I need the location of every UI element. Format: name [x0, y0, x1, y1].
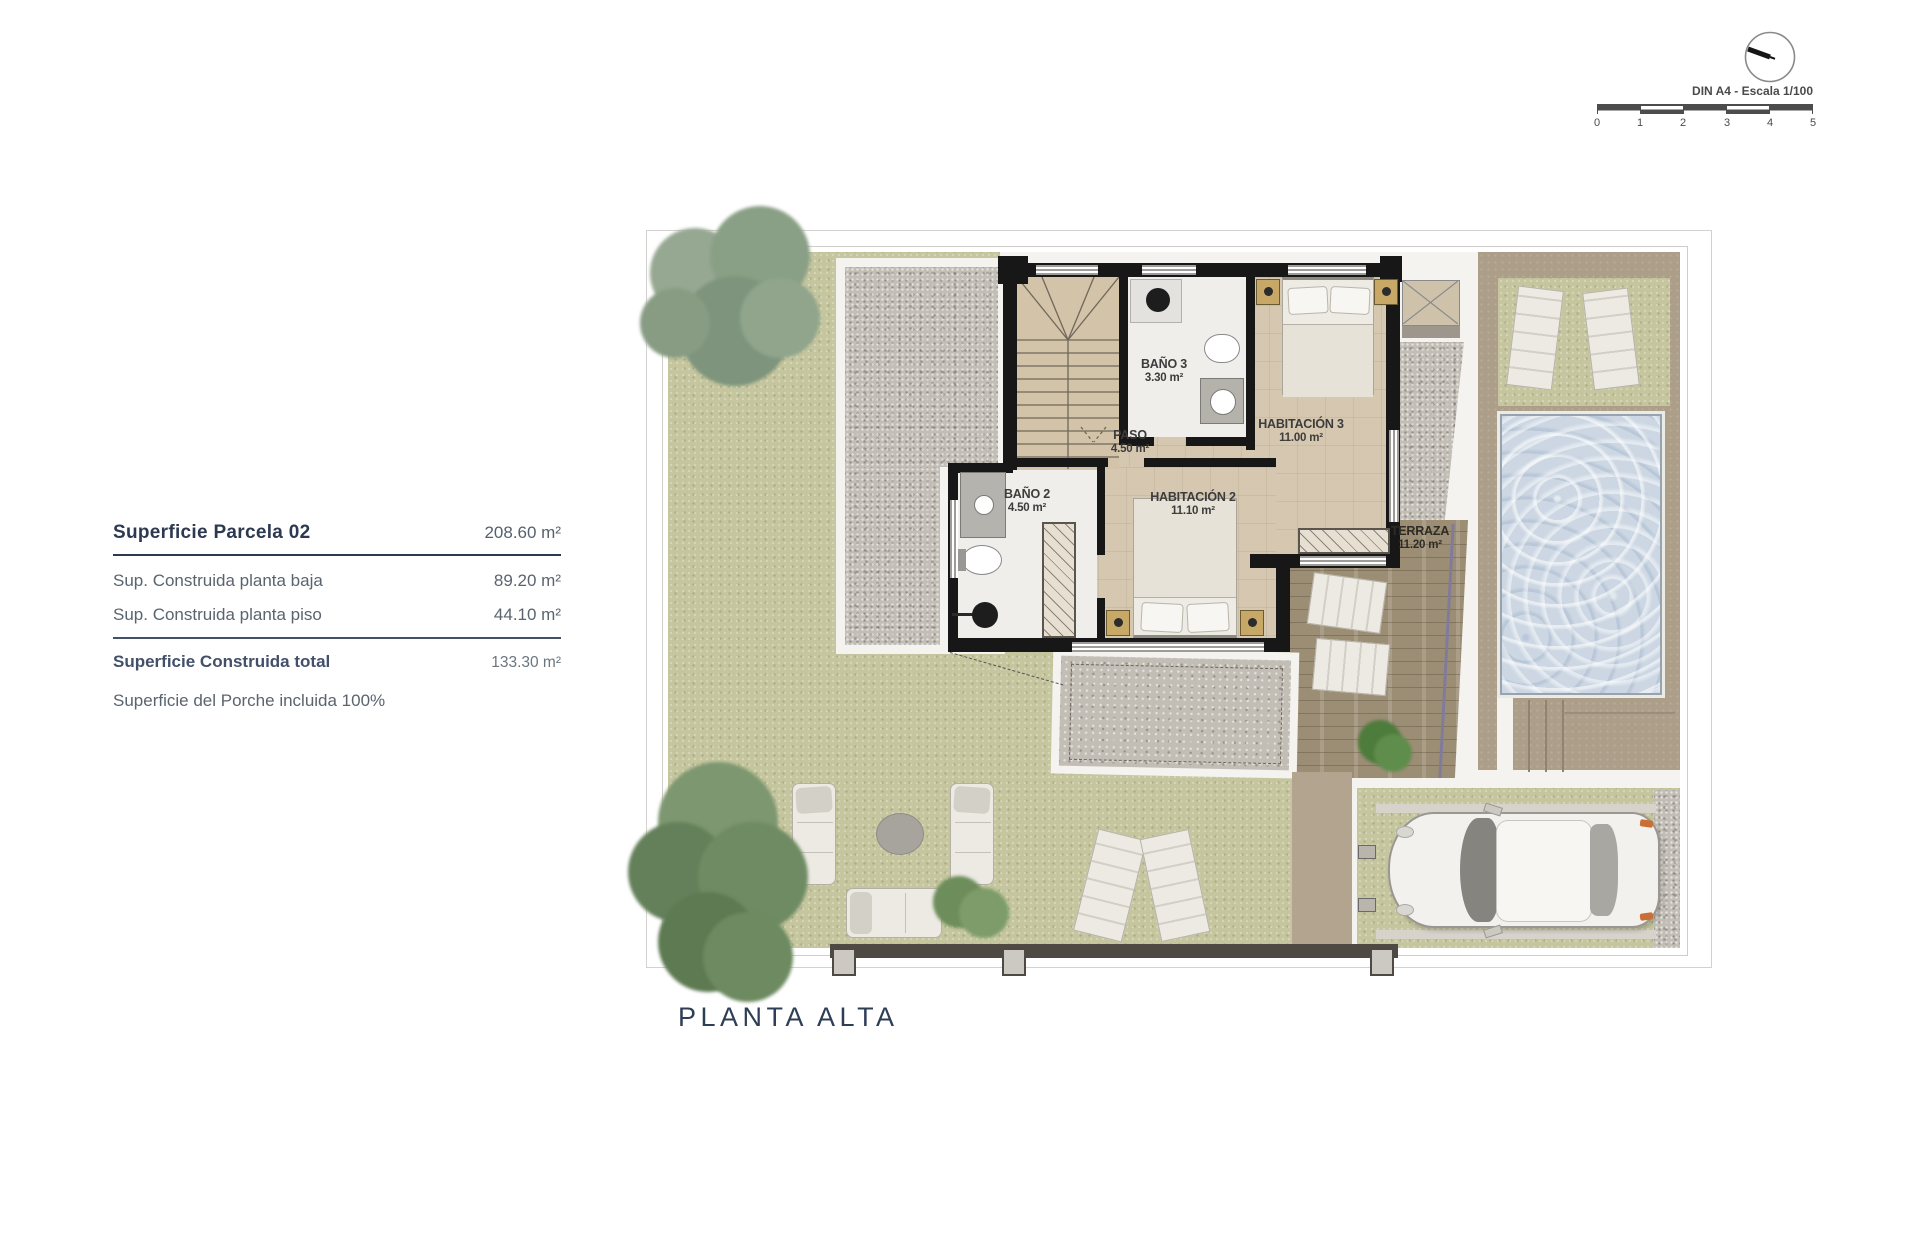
- toilet: [962, 545, 1002, 575]
- sofa-back: [953, 786, 991, 814]
- wall-corner-block: [998, 256, 1028, 284]
- gate-post: [1358, 898, 1376, 912]
- garden-table: [876, 813, 924, 855]
- room-label-paso: PASO 4.50 m²: [1088, 428, 1172, 456]
- table-divider: [113, 637, 561, 639]
- car-headlight: [1396, 904, 1414, 916]
- pillow: [1329, 286, 1370, 315]
- scale-ticks: 0 1 2 3 4 5: [1597, 116, 1813, 130]
- window: [1142, 265, 1196, 275]
- pillow: [1287, 286, 1328, 315]
- floor-plan-sheet: DIN A4 - Escala 1/100 0 1 2 3 4 5 Superf…: [0, 0, 1920, 1248]
- nightstand: [1240, 610, 1264, 636]
- terrace-sun-lounger: [1307, 572, 1388, 634]
- scale-bar-graphic: [1597, 104, 1813, 114]
- window: [1288, 265, 1366, 275]
- garden-loveseat: [846, 888, 942, 938]
- porch-post: [1002, 948, 1026, 976]
- plan-title: PLANTA ALTA: [678, 1002, 899, 1032]
- car-taillight: [1640, 912, 1654, 921]
- washbasin: [1146, 288, 1170, 312]
- terrace-door: [1300, 556, 1386, 566]
- bush: [933, 868, 1009, 946]
- table-divider: [113, 554, 561, 556]
- window: [1036, 265, 1098, 275]
- gravel-area-upper: [845, 267, 998, 467]
- bed: [1282, 277, 1374, 395]
- wall-mid: [1144, 458, 1276, 467]
- path-vertical: [1292, 772, 1352, 948]
- window: [950, 500, 958, 578]
- shower-drain: [1210, 389, 1236, 415]
- tree-top-left: [640, 198, 825, 403]
- lower-gravel-border: [1051, 647, 1300, 778]
- porch-post: [1370, 948, 1394, 976]
- porch-edge: [830, 944, 1398, 958]
- deck-seam: [1563, 712, 1675, 714]
- pillow: [1186, 602, 1229, 633]
- porch-post: [832, 948, 856, 976]
- toilet-tank: [958, 549, 966, 571]
- scale-label: DIN A4 - Escala 1/100: [1597, 84, 1813, 98]
- wall-bath2-hab2: [1097, 467, 1105, 555]
- car-windshield: [1460, 818, 1500, 922]
- window: [1389, 430, 1399, 522]
- sofa-back: [850, 892, 872, 934]
- row-value: 44.10 m²: [494, 604, 561, 626]
- car-headlight: [1396, 826, 1414, 838]
- area-table: Superficie Parcela 02 208.60 m² Sup. Con…: [113, 520, 561, 712]
- window: [1072, 642, 1264, 652]
- wall-mid: [1017, 458, 1108, 467]
- pillow: [1140, 602, 1183, 633]
- terrace-sun-lounger: [1312, 638, 1390, 696]
- parking-pad-line: [1376, 930, 1656, 939]
- parcel-label: Superficie Parcela 02: [113, 520, 310, 546]
- room-label-bano3: BAÑO 3 3.30 m²: [1118, 357, 1210, 385]
- car-roof: [1496, 820, 1592, 922]
- wall-bath3-bottom: [1186, 437, 1246, 446]
- nightstand: [1374, 279, 1398, 305]
- scale-bar: DIN A4 - Escala 1/100 0 1 2 3 4 5: [1597, 84, 1813, 130]
- wardrobe: [1042, 522, 1076, 638]
- ground-floor-dashed-outline: [1069, 664, 1283, 764]
- porch-footnote: Superficie del Porche incluida 100%: [113, 690, 561, 712]
- ac-unit-shadow: [1402, 326, 1460, 338]
- deck-steps: [1513, 700, 1565, 772]
- car: [1388, 812, 1660, 928]
- basin-arm: [952, 613, 974, 616]
- total-label: Superficie Construida total: [113, 651, 330, 673]
- room-label-bano2: BAÑO 2 4.50 m²: [982, 487, 1072, 515]
- row-value: 89.20 m²: [494, 570, 561, 592]
- room-label-habitacion3: HABITACIÓN 3 11.00 m²: [1238, 417, 1364, 445]
- north-compass-icon: [1744, 31, 1796, 83]
- gravel-area-lower: [845, 467, 940, 645]
- terrace-bush: [1358, 720, 1414, 776]
- washbasin: [972, 602, 998, 628]
- tree-bottom-left: [628, 762, 818, 1012]
- ac-unit: [1402, 280, 1460, 326]
- row-label: Sup. Construida planta piso: [113, 604, 322, 626]
- room-label-habitacion2: HABITACIÓN 2 11.10 m²: [1130, 490, 1256, 518]
- parcel-value: 208.60 m²: [484, 520, 561, 546]
- duvet: [1283, 324, 1373, 397]
- gate-post: [1358, 845, 1376, 859]
- wall-left: [1003, 277, 1017, 470]
- total-value: 133.30 m²: [491, 652, 561, 674]
- room-label-terraza: TERRAZA 11.20 m²: [1374, 524, 1466, 552]
- row-label: Sup. Construida planta baja: [113, 570, 323, 592]
- nightstand: [1106, 610, 1130, 636]
- swimming-pool: [1500, 414, 1662, 695]
- nightstand: [1256, 279, 1280, 305]
- bed: [1133, 498, 1237, 638]
- car-rear-window: [1590, 824, 1618, 916]
